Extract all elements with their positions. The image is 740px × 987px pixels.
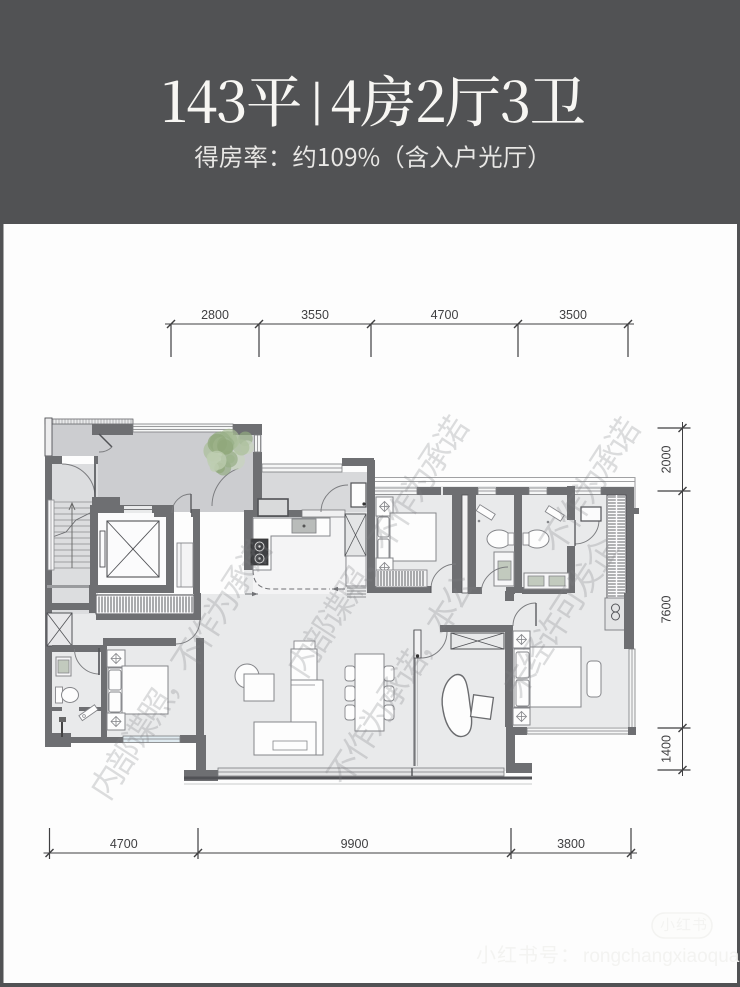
svg-text:9900: 9900 xyxy=(341,837,369,851)
svg-text:4700: 4700 xyxy=(110,837,138,851)
svg-text:3550: 3550 xyxy=(301,308,329,322)
svg-text:3500: 3500 xyxy=(559,308,587,322)
svg-text:2000: 2000 xyxy=(660,446,674,474)
svg-text:rongchangxiaoqua: rongchangxiaoqua xyxy=(583,946,740,967)
svg-text:3800: 3800 xyxy=(557,837,585,851)
svg-text:2800: 2800 xyxy=(201,308,229,322)
svg-text:1400: 1400 xyxy=(660,735,674,763)
svg-text:7600: 7600 xyxy=(660,596,674,624)
svg-text:4700: 4700 xyxy=(431,308,459,322)
